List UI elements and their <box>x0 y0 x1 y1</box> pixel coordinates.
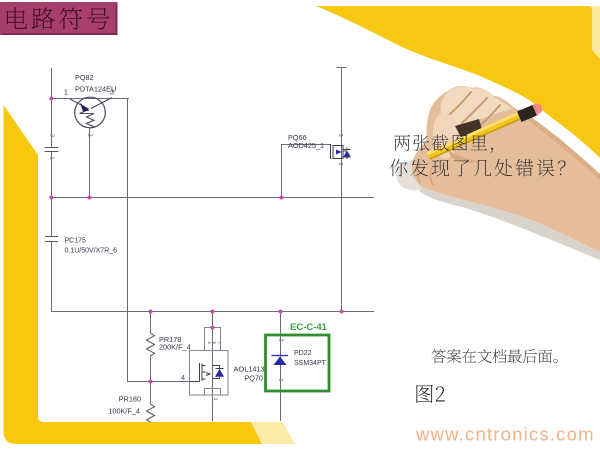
svg-text:4: 4 <box>181 375 185 382</box>
svg-text:PR180: PR180 <box>119 395 141 404</box>
svg-text:2: 2 <box>278 339 284 342</box>
svg-text:PQ82: PQ82 <box>75 73 94 82</box>
svg-text:1: 1 <box>49 157 55 160</box>
svg-text:EC-C-41: EC-C-41 <box>290 322 328 333</box>
svg-text:3: 3 <box>337 134 343 137</box>
svg-text:1: 1 <box>212 398 218 401</box>
svg-text:www.cntronics.com: www.cntronics.com <box>415 424 595 445</box>
svg-text:1: 1 <box>278 379 284 382</box>
svg-text:3: 3 <box>110 90 114 97</box>
svg-text:5: 5 <box>207 342 212 345</box>
svg-text:PD22: PD22 <box>294 350 312 357</box>
svg-text:100K/F_4: 100K/F_4 <box>108 407 140 416</box>
svg-text:AOL1413: AOL1413 <box>234 365 265 374</box>
svg-text:SSM34PT: SSM34PT <box>294 360 327 367</box>
svg-text:2: 2 <box>87 134 93 137</box>
svg-text:PQ70: PQ70 <box>244 374 263 383</box>
svg-text:200K/F_4: 200K/F_4 <box>159 343 191 352</box>
svg-text:0.1U/50V/X7R_6: 0.1U/50V/X7R_6 <box>65 248 118 255</box>
svg-text:2: 2 <box>49 134 55 137</box>
svg-text:1: 1 <box>64 90 68 97</box>
svg-text:PC175: PC175 <box>65 238 87 245</box>
svg-text:2: 2 <box>337 163 343 166</box>
svg-text:AOD425_1: AOD425_1 <box>288 141 324 150</box>
svg-text:7: 7 <box>217 342 222 345</box>
